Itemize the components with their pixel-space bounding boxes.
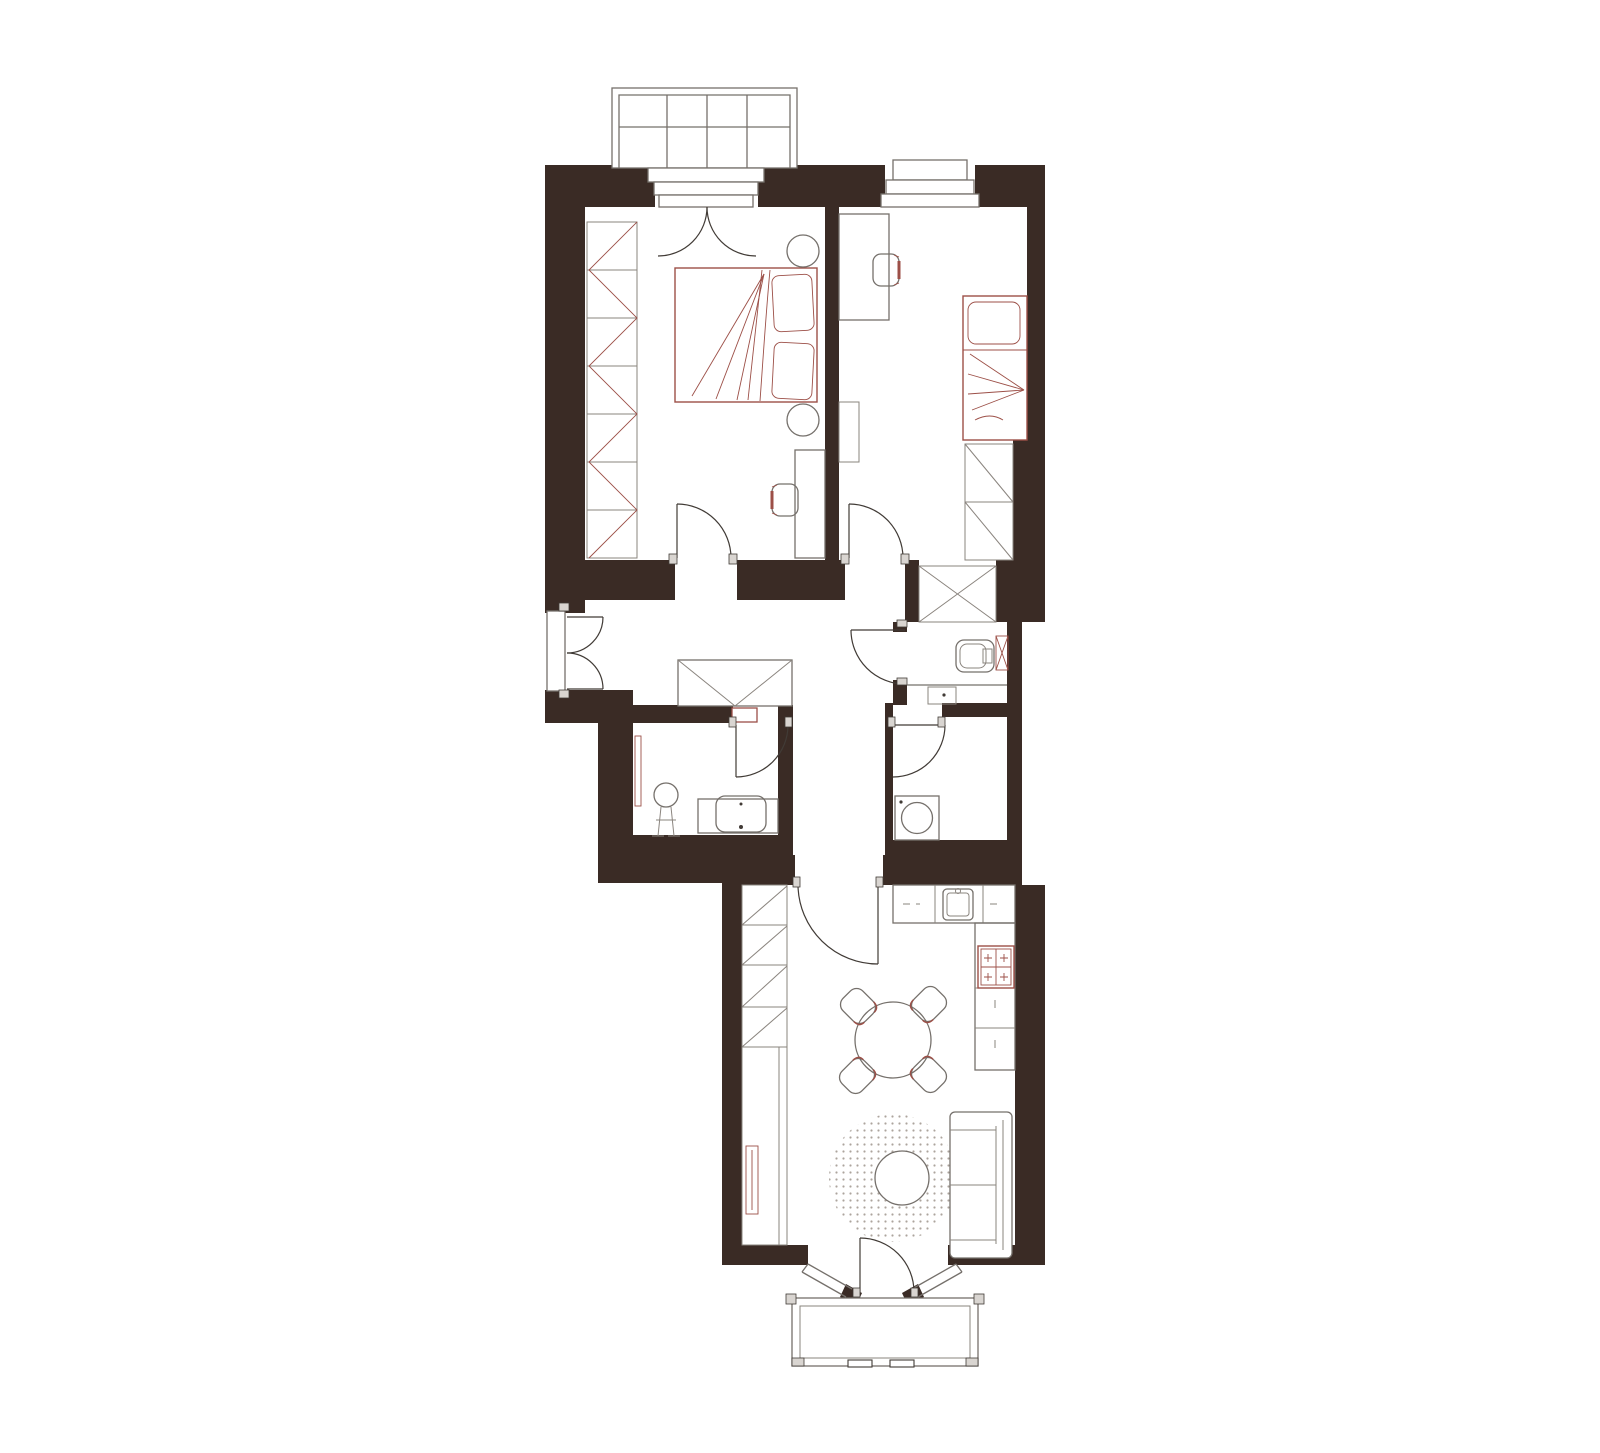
double-bed — [675, 268, 817, 402]
living-radiator — [746, 1146, 758, 1214]
bedside-lamp-top — [787, 235, 819, 267]
diagonal-cabinet-column — [742, 885, 787, 1047]
bedside-lamp-bottom — [787, 404, 819, 436]
niche-wardrobe-x — [919, 566, 996, 622]
bedroom1-desk-chair — [772, 484, 798, 516]
vanity-basin — [698, 796, 778, 833]
round-washstand — [652, 783, 680, 836]
kitchen-side-counter — [975, 923, 1015, 1070]
washing-machine — [895, 796, 939, 840]
bedroom1-door — [669, 504, 737, 564]
stove-4-burners — [978, 946, 1014, 988]
living-room-door — [793, 877, 883, 964]
coffee-table — [875, 1151, 929, 1205]
bay-window — [802, 1264, 962, 1297]
bedroom1-desk — [795, 450, 825, 558]
wc-sink-counter — [907, 685, 1007, 704]
toilet — [956, 640, 994, 672]
dining-chair-sw — [836, 1055, 878, 1097]
wc-radiator — [996, 636, 1008, 670]
kitchen-counter-top — [893, 885, 1015, 923]
kitchen-sink — [943, 889, 973, 921]
zigzag-wardrobe — [587, 222, 637, 558]
wc-door — [851, 620, 907, 685]
floor-plan-canvas — [0, 0, 1600, 1453]
laundry-door — [888, 717, 945, 777]
bedroom2-wardrobe — [965, 444, 1013, 560]
bedroom2-shelf — [839, 402, 859, 462]
round-dining-table — [855, 1002, 931, 1078]
bedroom2-desk — [839, 214, 889, 320]
bedroom2-window-sill — [881, 160, 979, 207]
glazed-balcony — [612, 88, 797, 168]
french-balcony-door — [648, 168, 764, 256]
sofa — [950, 1112, 1012, 1258]
bedroom2-door — [841, 504, 909, 564]
dining-chair-ne — [908, 983, 950, 1025]
single-bed — [963, 296, 1027, 440]
envelope-wardrobe — [678, 660, 792, 706]
bathroom-mirror — [635, 736, 641, 806]
dining-chair-se — [908, 1054, 950, 1096]
floor-plan-svg — [0, 0, 1600, 1453]
entry-double-door — [547, 603, 603, 698]
bottom-balcony — [786, 1294, 984, 1367]
dining-chair-nw — [837, 985, 879, 1027]
bay-balcony-door — [853, 1238, 918, 1297]
